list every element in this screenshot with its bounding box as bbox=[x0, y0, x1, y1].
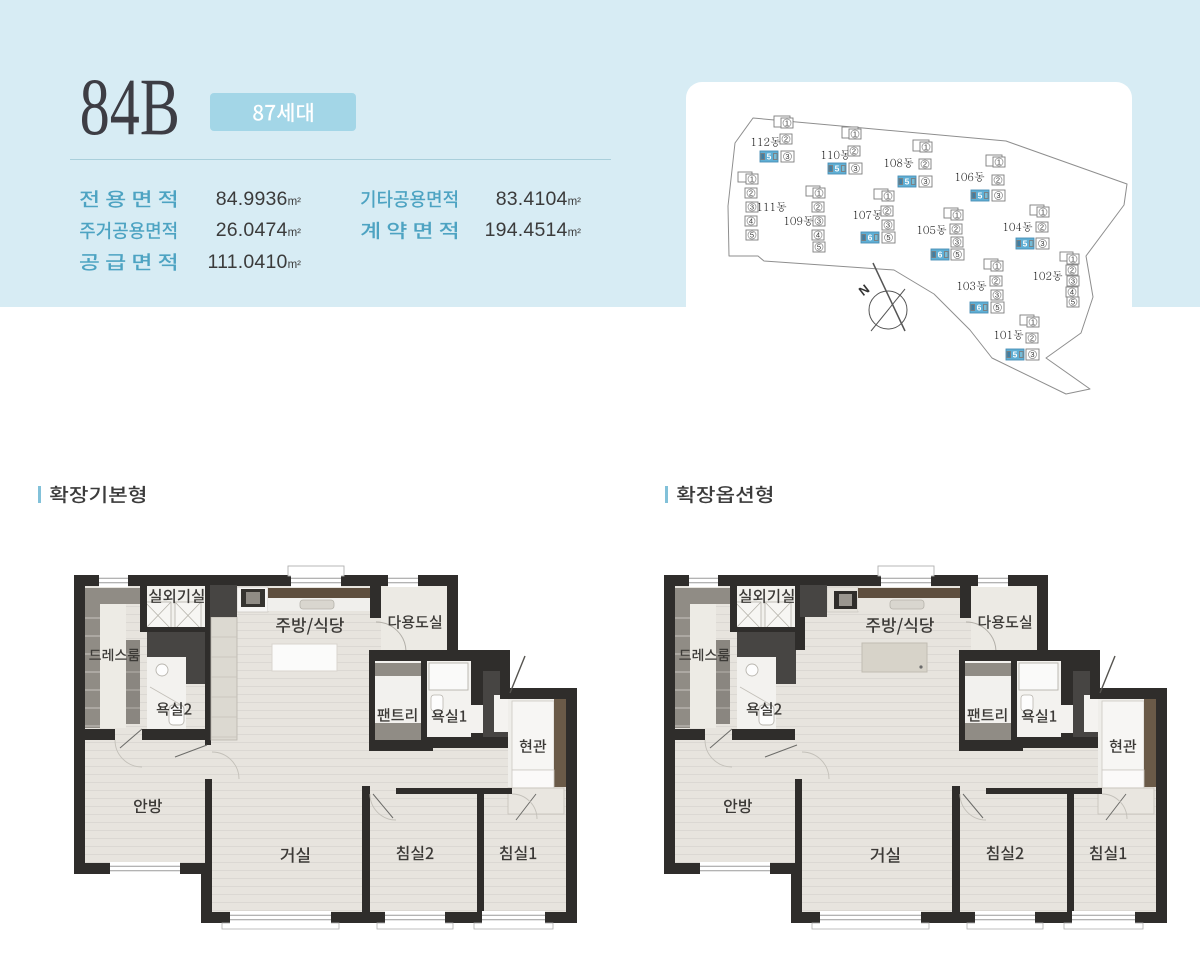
svg-text:3: 3 bbox=[923, 177, 927, 186]
svg-text:2: 2 bbox=[784, 135, 788, 144]
svg-text:2: 2 bbox=[996, 176, 1000, 185]
svg-text:2: 2 bbox=[954, 225, 958, 234]
svg-text:5: 5 bbox=[750, 231, 754, 240]
svg-text:3: 3 bbox=[785, 152, 789, 161]
svg-text:3: 3 bbox=[996, 191, 1000, 200]
svg-text:4: 4 bbox=[749, 217, 753, 226]
svg-text:2: 2 bbox=[852, 147, 856, 156]
svg-text:5: 5 bbox=[978, 191, 983, 201]
svg-text:3: 3 bbox=[817, 217, 821, 226]
svg-text:3: 3 bbox=[955, 238, 959, 247]
svg-text:5: 5 bbox=[955, 250, 959, 259]
svg-text:4: 4 bbox=[1070, 288, 1074, 297]
svg-text:1: 1 bbox=[1031, 318, 1035, 327]
svg-text:3: 3 bbox=[886, 221, 890, 230]
svg-text:2: 2 bbox=[1040, 223, 1044, 232]
svg-text:3: 3 bbox=[750, 203, 754, 212]
svg-text:3: 3 bbox=[1030, 350, 1034, 359]
svg-text:3: 3 bbox=[995, 291, 999, 300]
svg-text:5: 5 bbox=[1013, 350, 1018, 360]
svg-text:5: 5 bbox=[767, 152, 772, 162]
svg-text:2: 2 bbox=[816, 203, 820, 212]
svg-text:1: 1 bbox=[1071, 255, 1075, 264]
svg-text:5: 5 bbox=[817, 243, 821, 252]
svg-text:5: 5 bbox=[835, 164, 840, 174]
svg-text:2: 2 bbox=[1070, 266, 1074, 275]
svg-text:1: 1 bbox=[997, 158, 1001, 167]
svg-text:3: 3 bbox=[853, 164, 857, 173]
svg-text:2: 2 bbox=[885, 207, 889, 216]
svg-text:1: 1 bbox=[750, 175, 754, 184]
svg-text:5: 5 bbox=[1023, 239, 1028, 249]
svg-text:1: 1 bbox=[924, 143, 928, 152]
svg-text:2: 2 bbox=[994, 277, 998, 286]
svg-text:5: 5 bbox=[886, 233, 890, 242]
svg-text:2: 2 bbox=[749, 189, 753, 198]
svg-text:2: 2 bbox=[923, 160, 927, 169]
svg-text:2: 2 bbox=[1030, 334, 1034, 343]
svg-text:1: 1 bbox=[995, 262, 999, 271]
svg-text:6: 6 bbox=[868, 233, 873, 243]
svg-text:5: 5 bbox=[905, 177, 910, 187]
svg-text:1: 1 bbox=[1041, 208, 1045, 217]
svg-text:1: 1 bbox=[955, 211, 959, 220]
svg-text:6: 6 bbox=[977, 303, 982, 313]
svg-text:1: 1 bbox=[886, 192, 890, 201]
svg-text:4: 4 bbox=[816, 231, 820, 240]
svg-text:3: 3 bbox=[1071, 277, 1075, 286]
svg-text:5: 5 bbox=[995, 303, 999, 312]
svg-text:6: 6 bbox=[938, 250, 943, 260]
svg-text:5: 5 bbox=[1071, 298, 1075, 307]
svg-text:1: 1 bbox=[785, 119, 789, 128]
svg-text:1: 1 bbox=[853, 130, 857, 139]
svg-text:3: 3 bbox=[1040, 239, 1044, 248]
svg-text:1: 1 bbox=[817, 189, 821, 198]
